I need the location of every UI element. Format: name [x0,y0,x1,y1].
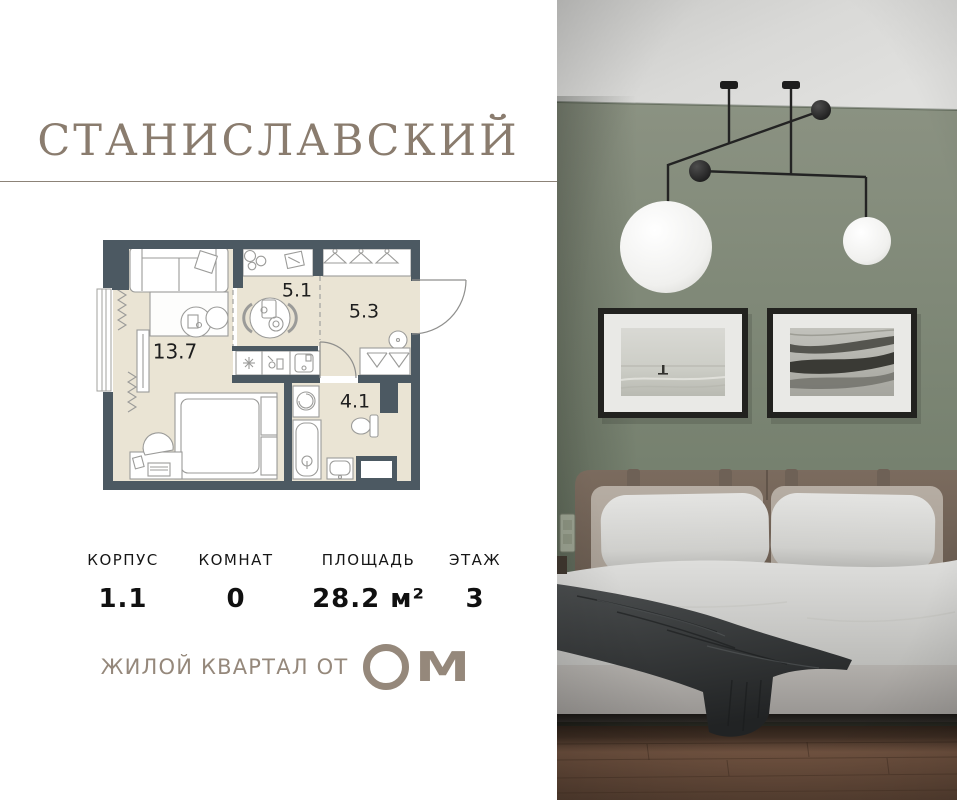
page-title: СТАНИСЛАВСКИЙ [0,116,557,166]
room-area-label: 13.7 [153,340,198,364]
tagline: ЖИЛОЙ КВАРТАЛ ОТ [101,655,349,679]
room-area-label: 5.3 [349,301,379,323]
spec-label: ЭТАЖ [413,551,537,569]
bedroom-photo [557,0,957,800]
bedroom-scene [557,0,957,800]
spec-value: 0 [176,584,296,614]
spec-korpus: КОРПУС 1.1 [63,551,183,614]
om-logo: М [363,644,456,690]
spec-label: КОРПУС [63,551,183,569]
photo-vignette [557,0,957,800]
spec-value: 1.1 [63,584,183,614]
spec-label: КОМНАТ [176,551,296,569]
om-o-ring-icon [363,644,409,690]
room-area-label: 5.1 [282,280,312,302]
entrance-door [412,280,466,334]
divider-rule [0,181,557,182]
om-m-glyph: М [415,647,470,688]
floorplan: 13.7 5.1 5.3 4.1 [96,236,468,492]
developer-row: ЖИЛОЙ КВАРТАЛ ОТ М [0,644,557,690]
spec-rooms: КОМНАТ 0 [176,551,296,614]
shaft-niche [356,456,397,483]
info-panel: СТАНИСЛАВСКИЙ [0,0,557,800]
spec-value: 3 [413,584,537,614]
floorplan-svg: 13.7 5.1 5.3 4.1 [96,236,468,492]
room-area-label: 4.1 [340,391,370,413]
spec-floor: ЭТАЖ 3 [413,551,537,614]
flyer: СТАНИСЛАВСКИЙ [0,0,957,800]
window [96,288,112,392]
